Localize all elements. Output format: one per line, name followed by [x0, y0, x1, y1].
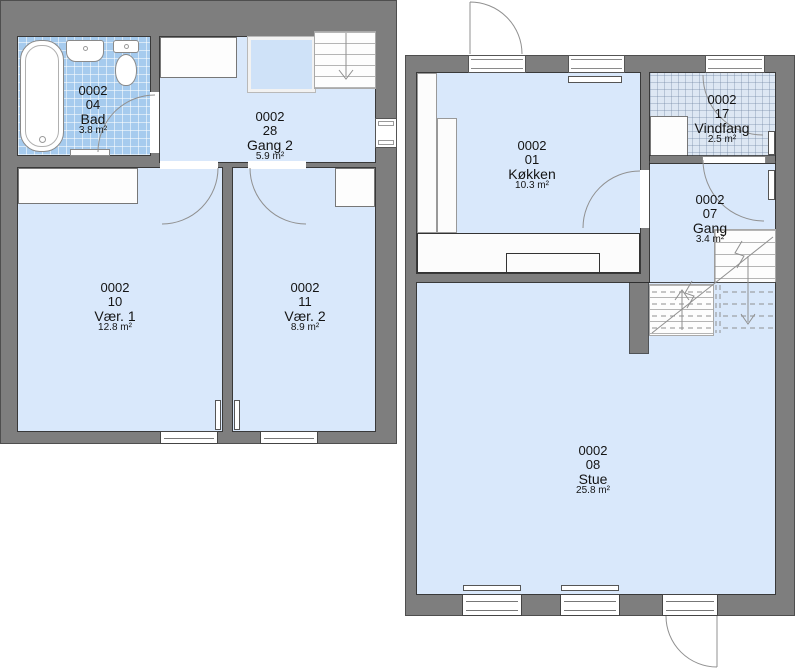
door-threshold-vindfang [702, 156, 766, 164]
room-label-koekken: 0002 01 Køkken 10.3 m² [508, 139, 555, 192]
room-code: 0002 [94, 281, 135, 295]
room-area: 12.8 m² [94, 323, 135, 334]
entrance-door [705, 55, 765, 73]
wall-stue-stair [630, 283, 648, 353]
room-label-vaer2: 0002 11 Vær. 2 8.9 m² [284, 281, 325, 334]
room-number: 07 [693, 207, 727, 221]
room-number: 04 [79, 98, 108, 112]
kitchen-appliance [506, 253, 600, 273]
radiator-vindfang [768, 131, 775, 155]
stairwell-void [248, 37, 315, 92]
floor-plan: 0002 04 Bad 3.8 m² 0002 28 Gang 2 5.9 m²… [0, 0, 800, 671]
kitchen-counter-left-wide [437, 118, 457, 233]
room-code: 0002 [693, 193, 727, 207]
room-name: Vindfang [694, 121, 749, 136]
room-stue-floor [417, 283, 775, 594]
room-area: 8.9 m² [284, 323, 325, 334]
room-label-stue: 0002 08 Stue 25.8 m² [576, 444, 610, 497]
room-number: 28 [247, 124, 293, 138]
room-name: Køkken [508, 167, 555, 182]
room-code: 0002 [284, 281, 325, 295]
door-koekken-north [468, 55, 526, 73]
stairs-right-lower [650, 285, 713, 335]
room-area: 10.3 m² [508, 181, 555, 192]
bath-mat [70, 149, 110, 156]
room-area: 3.4 m² [693, 235, 727, 246]
room-label-vindfang: 0002 17 Vindfang 2.5 m² [694, 93, 749, 146]
room-name: Vær. 2 [284, 309, 325, 324]
room-area: 2.5 m² [694, 135, 749, 146]
room-name: Gang 2 [247, 138, 293, 153]
room-area: 25.8 m² [576, 486, 610, 497]
room-area: 3.8 m² [79, 126, 108, 137]
radiator-stue-2 [561, 585, 619, 591]
room-number: 10 [94, 295, 135, 309]
room-code: 0002 [576, 444, 610, 458]
radiator-vaer1 [215, 400, 221, 430]
radiator-stue-1 [463, 585, 521, 591]
door-stue-south [662, 594, 718, 616]
room-name: Bad [79, 112, 108, 127]
door-opening-vaer1 [160, 161, 218, 169]
door-arc-koekken-north [470, 2, 522, 54]
room-label-gang2: 0002 28 Gang 2 5.9 m² [247, 110, 293, 163]
toilet-bowl [115, 54, 137, 86]
room-name: Stue [576, 472, 610, 487]
room-label-vaer1: 0002 10 Vær. 1 12.8 m² [94, 281, 135, 334]
window-vaer2-south [260, 431, 318, 444]
room-code: 0002 [247, 110, 293, 124]
room-area: 5.9 m² [247, 152, 293, 163]
room-number: 17 [694, 107, 749, 121]
kitchen-counter-left [417, 73, 437, 233]
room-number: 01 [508, 153, 555, 167]
window-koekken-north [568, 55, 625, 73]
room-code: 0002 [508, 139, 555, 153]
radiator-koekken [568, 76, 622, 83]
room-name: Vær. 1 [94, 309, 135, 324]
room-code: 0002 [79, 84, 108, 98]
bathtub [20, 40, 64, 152]
window-vaer1-south [160, 431, 218, 444]
vindfang-closet [650, 116, 688, 160]
toilet-tank [113, 40, 139, 53]
sink [66, 40, 104, 62]
window-stue-south-2 [560, 594, 620, 616]
room-number: 11 [284, 295, 325, 309]
gang2-closet [160, 37, 237, 78]
room-number: 08 [576, 458, 610, 472]
radiator-vaer2 [234, 400, 240, 430]
vaer1-closet [18, 168, 138, 204]
window-left-east [375, 118, 397, 148]
room-label-gang: 0002 07 Gang 3.4 m² [693, 193, 727, 246]
room-label-bad: 0002 04 Bad 3.8 m² [79, 84, 108, 137]
door-opening-bad [150, 92, 160, 153]
vaer2-closet [335, 168, 375, 207]
door-opening-koekken [640, 170, 650, 228]
room-name: Gang [693, 221, 727, 236]
room-code: 0002 [694, 93, 749, 107]
stairs-left [315, 32, 375, 88]
door-arc-stue-south [666, 616, 717, 667]
radiator-gang [768, 170, 775, 200]
window-stue-south-1 [462, 594, 522, 616]
